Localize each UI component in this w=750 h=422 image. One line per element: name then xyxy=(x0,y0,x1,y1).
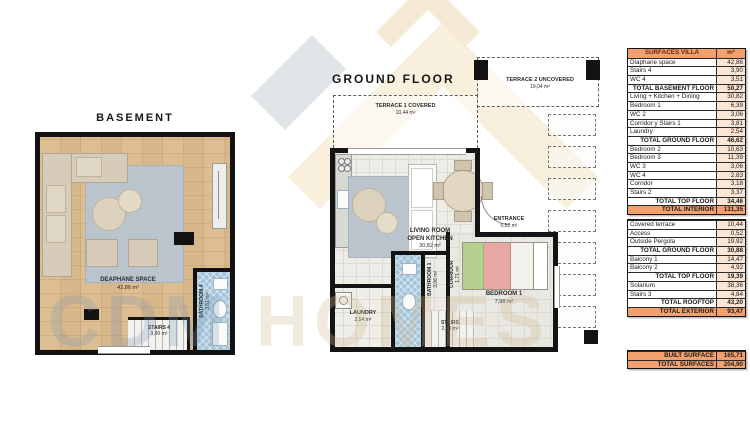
sofa-cushion xyxy=(46,215,66,243)
pillar xyxy=(84,309,99,320)
surface-label: Stairs 2 xyxy=(628,189,716,197)
surface-label: TOTAL TOP FLOOR xyxy=(628,198,716,206)
surface-row: TOTAL GROUND FLOOR 46,62 xyxy=(628,136,745,145)
surface-label: Bedroom 2 xyxy=(628,146,716,154)
basement-title: BASEMENT xyxy=(35,112,235,124)
surface-label: TOTAL ROOFTOP xyxy=(628,299,716,307)
ground-bathroom xyxy=(395,255,421,352)
surface-value: 46,62 xyxy=(716,137,745,145)
ground-floor-plan: LIVING ROOM OPEN KITCHEN 30,82 m² ENTRAN… xyxy=(330,148,558,352)
sink-icon xyxy=(402,263,417,275)
surface-label: WC 4 xyxy=(628,172,716,180)
surface-row: Diaphane space 42,86 xyxy=(628,58,745,67)
pergola-post xyxy=(584,330,598,344)
bed-blanket-pink xyxy=(484,243,511,289)
surface-value: 3,37 xyxy=(716,189,745,197)
surface-value: 3,18 xyxy=(716,180,745,188)
basement-stairs-label: STAIRS 4 3,90 m² xyxy=(128,325,190,338)
surface-value: 4,92 xyxy=(716,264,745,272)
surface-label: Balcony 2 xyxy=(628,264,716,272)
surface-row: Stairs 4 3,90 xyxy=(628,66,745,75)
bed-sheet xyxy=(511,243,533,289)
surface-label: Balcony 1 xyxy=(628,256,716,264)
wall xyxy=(421,251,425,352)
surface-value: 3,90 xyxy=(716,67,745,75)
surface-row: TOTAL TOP FLOOR 34,46 xyxy=(628,197,745,206)
floorplan-sheet: CDM HOMES BASEMENT BATHROOM 4 3,51 xyxy=(0,0,750,422)
sofa-cushion xyxy=(46,185,66,213)
surface-row: Balcony 1 14,47 xyxy=(628,255,745,264)
surface-value: 165,71 xyxy=(716,352,745,360)
terrace1-label: TERRACE 1 COVERED 10,44 m² xyxy=(343,103,468,116)
coffee-table-small xyxy=(118,189,142,213)
surface-value: 2,83 xyxy=(716,172,745,180)
surface-value: 11,39 xyxy=(716,154,745,162)
surface-value: 19,39 xyxy=(716,273,745,281)
window xyxy=(98,346,150,354)
cooktop-burner xyxy=(344,165,351,172)
cooktop-burner xyxy=(344,158,351,165)
surface-label: Stairs 3 xyxy=(628,291,716,299)
surface-label: WC 2 xyxy=(628,111,716,119)
entrance-label: ENTRANCE 0,52 m² xyxy=(480,216,538,229)
surface-value: 42,86 xyxy=(716,59,745,67)
surface-row: Access 0,52 xyxy=(628,229,745,238)
surface-value: 10,63 xyxy=(716,146,745,154)
surface-value: 38,36 xyxy=(716,282,745,290)
washer-icon xyxy=(335,292,352,309)
surface-row: Covered terrace 10,44 xyxy=(628,220,745,229)
dining-chair xyxy=(454,160,472,171)
surface-label: Corridor y Stairs 1 xyxy=(628,120,716,128)
surfaces-summary-table: BUILT SURFACE 165,71 TOTAL SURFACES 204,… xyxy=(627,350,746,369)
surface-value: 34,46 xyxy=(716,198,745,206)
wardrobe-handle xyxy=(218,171,219,219)
surfaces-exterior-table: Covered terrace 10,44 Access 0,52 Outsid… xyxy=(627,219,746,317)
surface-row: Bedroom 1 6,39 xyxy=(628,101,745,110)
surface-row: TOTAL SURFACES 204,90 xyxy=(628,360,745,369)
wall xyxy=(391,251,450,255)
pergola-post xyxy=(474,60,488,80)
toilet-icon xyxy=(213,300,227,318)
basement-plan: BATHROOM 4 3,51 m² STAIRS 4 3,90 m² DEAP… xyxy=(35,132,235,355)
sink-icon xyxy=(213,278,228,290)
pillar xyxy=(174,232,194,245)
surface-value: 3,06 xyxy=(716,111,745,119)
surface-row: WC 3 3,06 xyxy=(628,162,745,171)
surface-value: 131,35 xyxy=(716,206,745,214)
bed-headboard xyxy=(533,243,547,289)
surface-row: BUILT SURFACE 165,71 xyxy=(628,351,745,360)
window xyxy=(554,266,560,308)
surface-value: 93,47 xyxy=(716,308,745,316)
sofa-cushion xyxy=(411,168,433,208)
surfaces-header-label: SURFACES VILLA xyxy=(628,49,716,58)
surface-row: TOTAL BASEMENT FLOOR 50,27 xyxy=(628,84,745,93)
basement-bathroom-label: BATHROOM 4 3,51 m² xyxy=(199,272,212,330)
surface-row: Laundry 2,54 xyxy=(628,127,745,136)
glass-door xyxy=(348,148,466,155)
surface-value: 10,44 xyxy=(716,221,745,229)
surface-label: TOTAL SURFACES xyxy=(628,361,716,369)
wall xyxy=(330,284,395,288)
surface-label: TOTAL GROUND FLOOR xyxy=(628,137,716,145)
surface-value: 2,54 xyxy=(716,128,745,136)
surface-value: 3,81 xyxy=(716,120,745,128)
surface-row: Stairs 2 3,37 xyxy=(628,188,745,197)
surface-value: 43,20 xyxy=(716,299,745,307)
diaphane-label: DEAPHANE SPACE 42,86 m² xyxy=(68,277,188,291)
surface-row: Balcony 2 4,92 xyxy=(628,263,745,272)
laundry-label: LAUNDRY 2,54 m² xyxy=(335,310,391,323)
surface-label: Bedroom 3 xyxy=(628,154,716,162)
surfaces-interior-table: SURFACES VILLA m² Diaphane space 42,86 S… xyxy=(627,48,746,215)
surface-label: WC 3 xyxy=(628,163,716,171)
surface-label: Covered terrace xyxy=(628,221,716,229)
surface-label: Corridor xyxy=(628,180,716,188)
surface-label: Laundry xyxy=(628,128,716,136)
surface-value: 50,27 xyxy=(716,85,745,93)
surface-row: WC 4 3,51 xyxy=(628,75,745,84)
surfaces-header-unit: m² xyxy=(716,49,745,58)
dining-chair xyxy=(433,182,444,200)
sofa-cushion xyxy=(76,157,102,177)
surface-label: WC 4 xyxy=(628,76,716,84)
wardrobe xyxy=(212,163,227,229)
shower-icon xyxy=(212,322,228,346)
bed-blanket-green xyxy=(463,243,484,289)
surface-label: TOTAL EXTERIOR xyxy=(628,308,716,316)
wall xyxy=(475,232,558,237)
surfaces-table-header: SURFACES VILLA m² xyxy=(628,49,745,58)
armchair xyxy=(86,239,118,267)
living-label: LIVING ROOM OPEN KITCHEN 30,82 m² xyxy=(382,228,478,250)
surface-value: 4,84 xyxy=(716,291,745,299)
surface-value: 3,51 xyxy=(716,76,745,84)
surface-row: Corridor y Stairs 1 3,81 xyxy=(628,119,745,128)
surface-row: Living + Kitchen + Dining 30,82 xyxy=(628,92,745,101)
surface-label: TOTAL INTERIOR xyxy=(628,206,716,214)
surface-value: 19,92 xyxy=(716,238,745,246)
surface-row: TOTAL TOP FLOOR 19,39 xyxy=(628,272,745,281)
surface-label: TOTAL GROUND FLOOR xyxy=(628,247,716,255)
bathroom1-label: BATHROOM 1 3,06 m² xyxy=(427,252,440,306)
surface-row: Corridor 3,18 xyxy=(628,179,745,188)
toilet-icon xyxy=(402,293,416,310)
surface-value: 30,88 xyxy=(716,247,745,255)
surface-value: 3,06 xyxy=(716,163,745,171)
surface-value: 30,82 xyxy=(716,93,745,101)
ground-stairs-label: STAIRS 2,10 m² xyxy=(425,320,475,333)
dining-chair xyxy=(454,211,472,222)
surface-row: TOTAL ROOFTOP 43,20 xyxy=(628,298,745,307)
surface-value: 14,47 xyxy=(716,256,745,264)
terrace2-label: TERRACE 2 UNCOVERED 19,04 m² xyxy=(490,77,590,90)
surface-label: TOTAL TOP FLOOR xyxy=(628,273,716,281)
surface-row: Bedroom 2 10,63 xyxy=(628,145,745,154)
surface-row: WC 4 2,83 xyxy=(628,171,745,180)
surface-value: 0,52 xyxy=(716,230,745,238)
surface-row: TOTAL EXTERIOR 93,47 xyxy=(628,307,745,316)
wall xyxy=(330,347,558,352)
surface-row: TOTAL INTERIOR 131,35 xyxy=(628,205,745,214)
surface-label: Diaphane space xyxy=(628,59,716,67)
surface-row: Stairs 3 4,84 xyxy=(628,290,745,299)
surface-label: Living + Kitchen + Dining xyxy=(628,93,716,101)
surface-row: WC 2 3,06 xyxy=(628,110,745,119)
surface-value: 6,39 xyxy=(716,102,745,110)
surface-label: Outside Pergola xyxy=(628,238,716,246)
armchair xyxy=(128,239,158,267)
ground-floor-title: GROUND FLOOR xyxy=(332,72,455,86)
surface-label: Solarium xyxy=(628,282,716,290)
surface-label: BUILT SURFACE xyxy=(628,352,716,360)
surface-label: Bedroom 1 xyxy=(628,102,716,110)
surface-label: Access xyxy=(628,230,716,238)
pergola-slat xyxy=(548,114,596,136)
corridor-label-main: CORRIDOR 1,71 m² xyxy=(449,249,462,299)
surface-row: Bedroom 3 11,39 xyxy=(628,153,745,162)
surface-label: Stairs 4 xyxy=(628,67,716,75)
bedroom-label: BEDROOM 1 7,98 m² xyxy=(465,291,543,305)
surface-label: TOTAL BASEMENT FLOOR xyxy=(628,85,716,93)
surface-row: Solarium 38,36 xyxy=(628,281,745,290)
wall xyxy=(391,251,395,352)
surface-row: TOTAL GROUND FLOOR 30,88 xyxy=(628,246,745,255)
surface-value: 204,90 xyxy=(716,361,745,369)
surface-row: Outside Pergola 19,92 xyxy=(628,237,745,246)
